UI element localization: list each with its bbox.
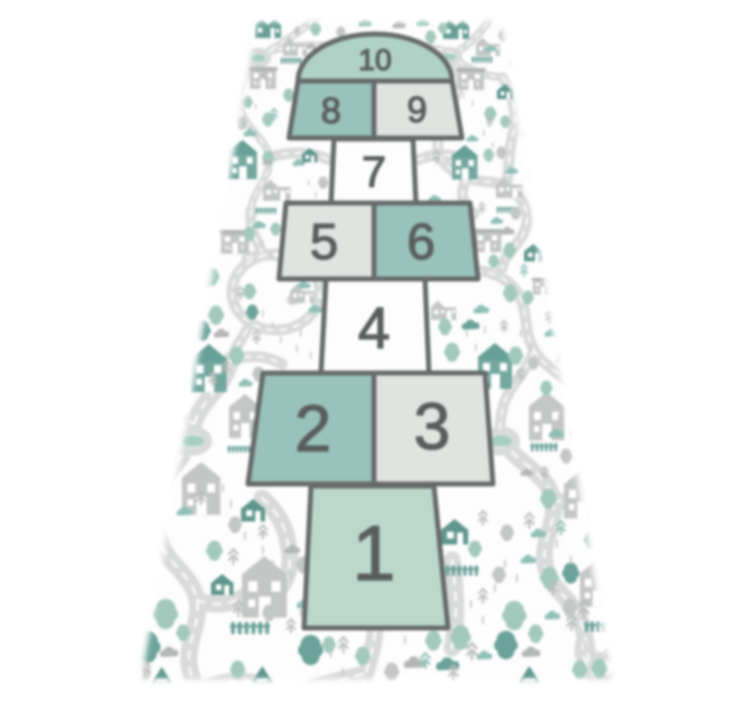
svg-text:4: 4: [358, 296, 390, 361]
svg-text:3: 3: [414, 389, 451, 463]
svg-text:10: 10: [358, 44, 391, 77]
svg-text:1: 1: [352, 509, 395, 597]
svg-text:9: 9: [407, 89, 427, 130]
svg-text:8: 8: [321, 90, 341, 131]
svg-text:6: 6: [407, 213, 435, 270]
svg-text:5: 5: [310, 213, 338, 270]
svg-text:2: 2: [295, 391, 332, 465]
svg-text:7: 7: [362, 148, 386, 197]
